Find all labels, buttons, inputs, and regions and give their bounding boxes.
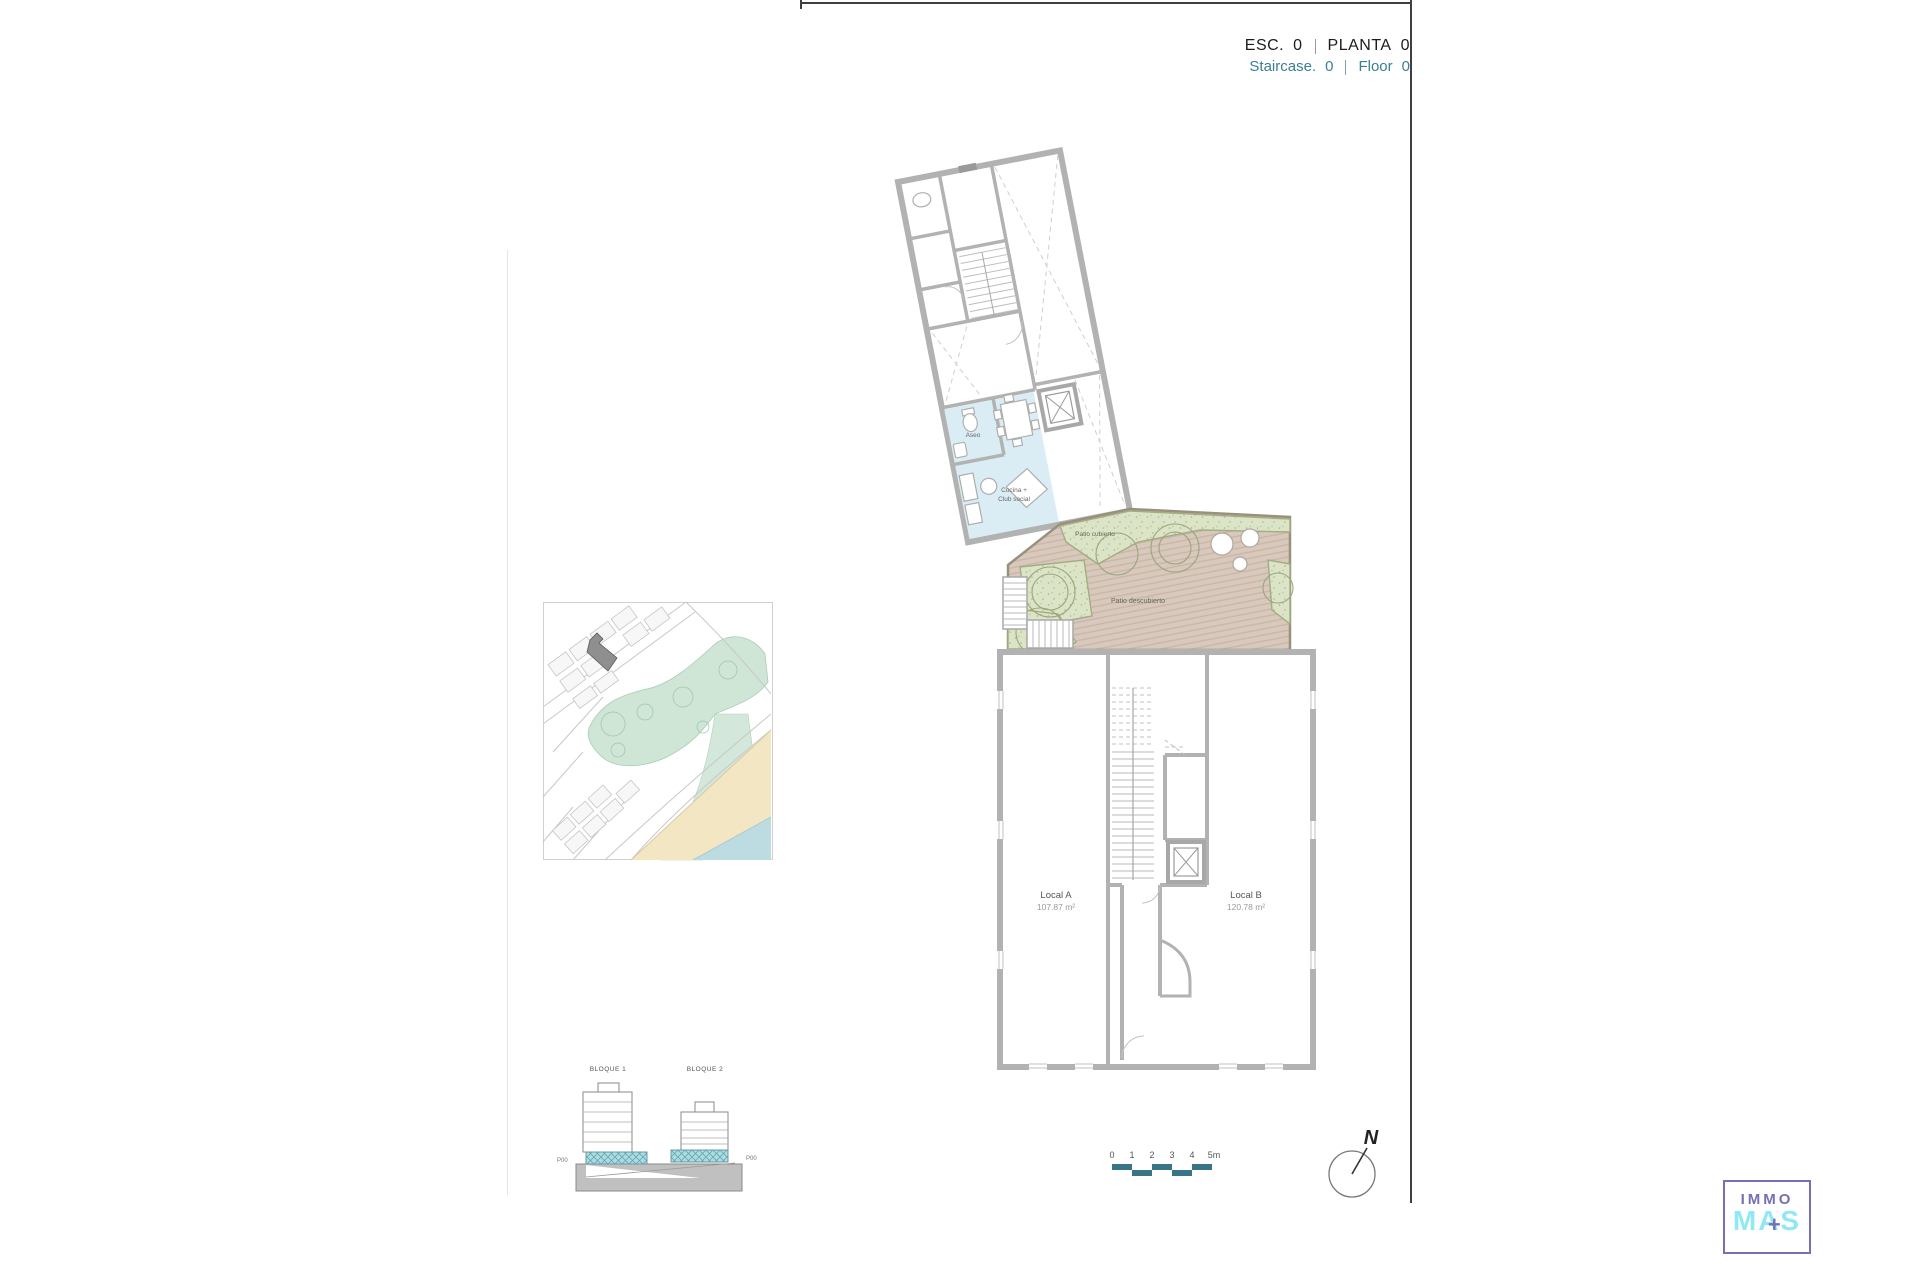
bloque1-label: BLOQUE 1 [590,1066,627,1073]
elevator-upper [1038,384,1081,430]
aseo-label: Aseo [966,432,981,439]
lower-building [996,652,1317,1070]
staircase-value: 0 [1325,57,1333,77]
north-arrow: N [1315,1112,1395,1202]
patio-descubierto-label: Patio descubierto [1111,598,1165,605]
patio [1003,509,1293,656]
elevator-lower [1168,842,1204,882]
elevation-base [576,1163,742,1191]
esc-value: 0 [1293,36,1302,56]
logo-line2: MAS + [1725,1208,1809,1234]
sheet-border-left [507,250,508,1195]
floor-value: 0 [1402,57,1410,77]
cocina-label-line1: Cocina + [1001,487,1027,494]
planta-label: PLANTA [1328,36,1392,56]
scale-tick-4: 4 [1189,1150,1194,1160]
elevation-svg: BLOQUE 1 BLOQUE 2 P00 P00 [545,1045,765,1205]
local-a-name: Local A [1040,890,1072,901]
local-b-area: 120.78 m² [1227,902,1265,912]
floor-plan-svg: Aseo Cocina + Club social Patio cubierto… [870,140,1340,1090]
plan-header: ESC. 0 PLANTA 0 Staircase. 0 Floor 0 [1170,36,1410,77]
scale-tick-0: 0 [1109,1150,1114,1160]
scale-tick-3: 3 [1169,1150,1174,1160]
bloque2-label: BLOQUE 2 [687,1066,724,1073]
p00-right-label: P00 [746,1156,757,1162]
local-a-area: 107.87 m² [1037,902,1075,912]
local-b-name: Local B [1230,890,1262,901]
staircase-label: Staircase. [1249,57,1316,77]
elevation-tower2 [671,1102,728,1162]
scale-tick-1: 1 [1129,1150,1134,1160]
scale-bar: 0 1 2 3 4 5m [1102,1146,1232,1186]
header-separator [1345,60,1346,75]
cocina-label-line2: Club social [998,496,1030,503]
esc-label: ESC. [1245,36,1284,56]
header-es-row: ESC. 0 PLANTA 0 [1170,36,1410,56]
sheet-border-right [1410,0,1412,1203]
p00-left-label: P00 [557,1158,568,1164]
site-map-svg [543,602,773,860]
planta-value: 0 [1401,36,1410,56]
upper-building [897,147,1130,543]
north-label: N [1364,1127,1379,1149]
header-separator [1315,39,1316,54]
immomas-logo: IMMO MAS + [1723,1180,1811,1254]
header-en-row: Staircase. 0 Floor 0 [1170,57,1410,77]
patio-cubierto-label: Patio cubierto [1075,531,1115,538]
scale-tick-5: 5m [1208,1150,1221,1160]
scale-bar-segments [1112,1164,1212,1176]
elevation-tower1 [583,1083,647,1164]
logo-plus-icon: + [1768,1212,1783,1238]
scale-tick-2: 2 [1149,1150,1154,1160]
sheet-border-corner [800,0,802,9]
sheet-border-top [800,2,1412,4]
floor-label: Floor [1358,57,1392,77]
